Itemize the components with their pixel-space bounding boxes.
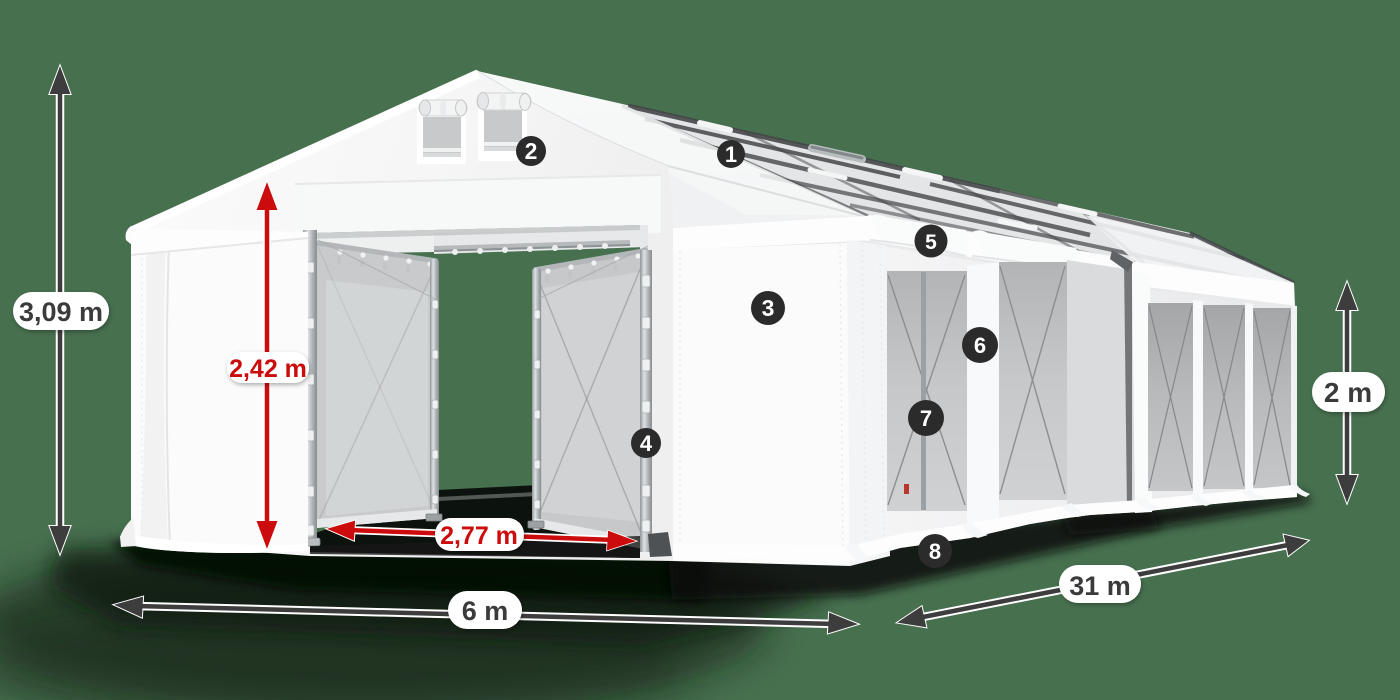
svg-text:2,77 m: 2,77 m — [440, 522, 518, 550]
svg-text:2,42 m: 2,42 m — [229, 355, 307, 383]
svg-text:8: 8 — [929, 539, 941, 564]
svg-text:31 m: 31 m — [1069, 571, 1131, 601]
svg-text:5: 5 — [925, 231, 937, 254]
svg-text:1: 1 — [725, 142, 737, 167]
svg-text:3,09 m: 3,09 m — [19, 297, 103, 327]
svg-text:2: 2 — [525, 138, 538, 164]
svg-text:4: 4 — [640, 431, 653, 456]
svg-text:3: 3 — [762, 295, 775, 321]
svg-text:2 m: 2 m — [1324, 377, 1372, 408]
svg-text:7: 7 — [920, 406, 932, 431]
svg-text:6: 6 — [974, 333, 986, 358]
svg-text:6 m: 6 m — [462, 596, 509, 626]
